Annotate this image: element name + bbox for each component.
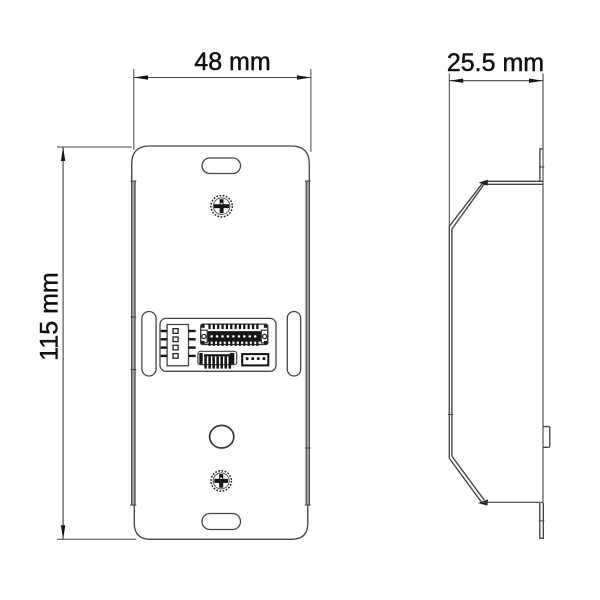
- svg-text:25.5 mm: 25.5 mm: [447, 49, 544, 77]
- svg-text:115 mm: 115 mm: [36, 272, 64, 360]
- svg-text:48 mm: 48 mm: [194, 48, 270, 76]
